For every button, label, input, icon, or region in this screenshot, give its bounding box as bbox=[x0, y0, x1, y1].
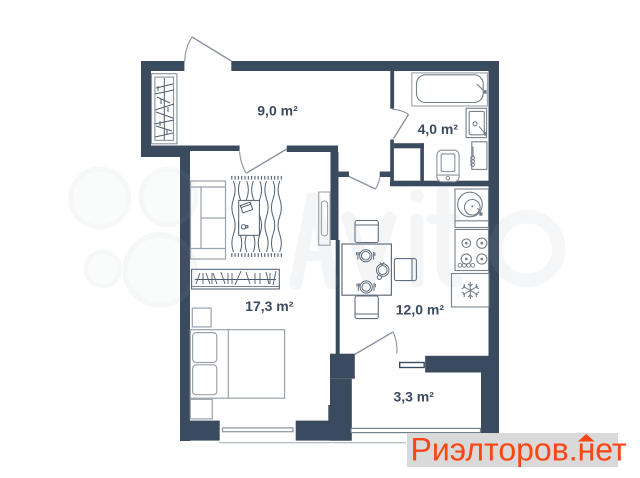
svg-text:Риэлторов.нет: Риэлторов.нет bbox=[411, 432, 628, 468]
svg-text:3,3 m²: 3,3 m² bbox=[393, 389, 434, 405]
svg-text:9,0 m²: 9,0 m² bbox=[257, 103, 298, 119]
svg-text:4,0 m²: 4,0 m² bbox=[418, 121, 459, 137]
svg-text:12,0 m²: 12,0 m² bbox=[396, 302, 445, 318]
svg-text:17,3 m²: 17,3 m² bbox=[245, 298, 294, 314]
